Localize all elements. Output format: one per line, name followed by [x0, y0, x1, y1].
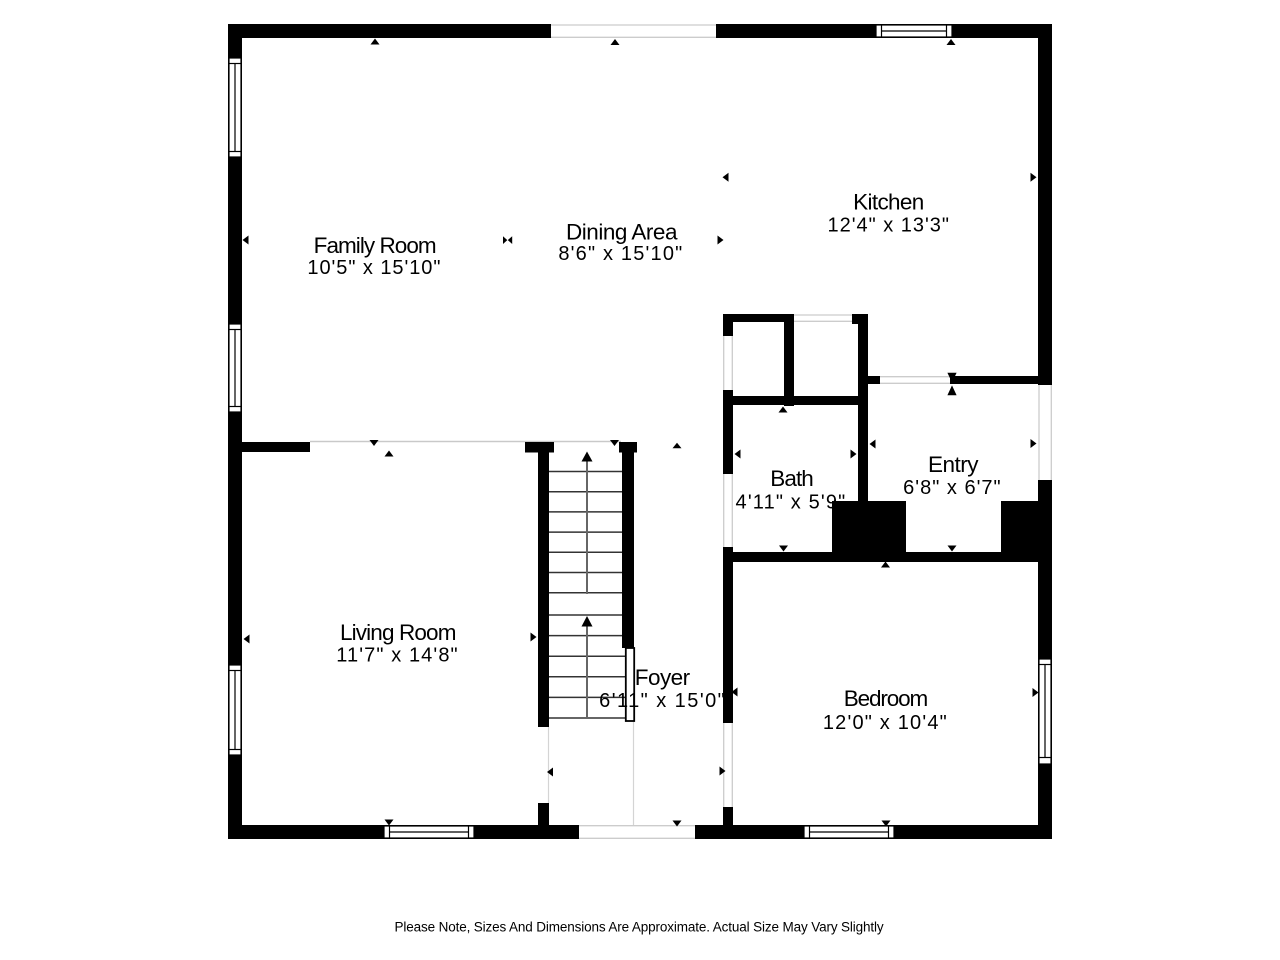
- svg-text:Bath: Bath: [770, 466, 813, 491]
- svg-text:4'11" x 5'9": 4'11" x 5'9": [736, 491, 847, 513]
- svg-text:6'8" x 6'7": 6'8" x 6'7": [903, 477, 1001, 499]
- svg-text:Bedroom: Bedroom: [844, 686, 928, 711]
- svg-text:Please Note, Sizes And Dimensi: Please Note, Sizes And Dimensions Are Ap…: [394, 920, 883, 935]
- svg-text:Family Room: Family Room: [314, 233, 436, 258]
- svg-text:8'6" x 15'10": 8'6" x 15'10": [558, 243, 683, 265]
- svg-text:6'11" x 15'0": 6'11" x 15'0": [599, 690, 726, 712]
- svg-text:10'5" x 15'10": 10'5" x 15'10": [307, 257, 441, 279]
- svg-text:Entry: Entry: [928, 452, 979, 477]
- svg-text:Kitchen: Kitchen: [853, 190, 924, 215]
- svg-text:12'0" x 10'4": 12'0" x 10'4": [823, 712, 948, 734]
- svg-text:Dining Area: Dining Area: [566, 220, 678, 245]
- svg-text:11'7" x 14'8": 11'7" x 14'8": [336, 644, 459, 666]
- svg-text:Foyer: Foyer: [635, 665, 691, 690]
- svg-text:12'4" x 13'3": 12'4" x 13'3": [828, 214, 950, 236]
- svg-text:Living Room: Living Room: [340, 620, 456, 645]
